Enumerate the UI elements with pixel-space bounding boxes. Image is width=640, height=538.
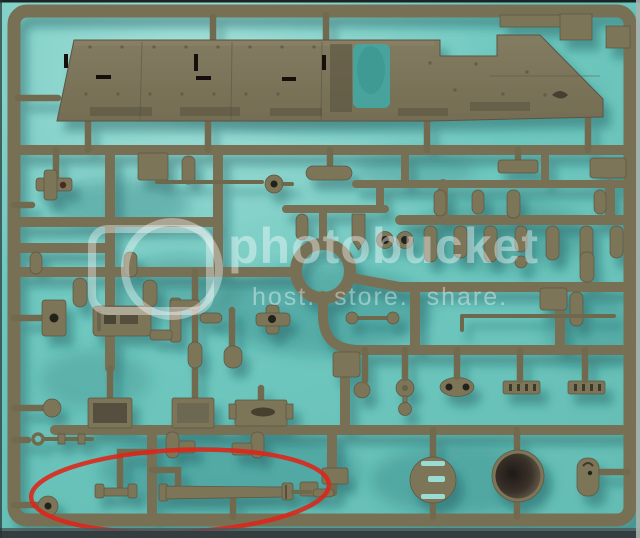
photo-right-edge	[636, 0, 640, 538]
capsule-part	[182, 156, 195, 184]
hull-recess-panel	[330, 44, 352, 112]
photo-top-edge	[0, 0, 640, 3]
watermark-title: photobucket	[228, 218, 539, 274]
watermark-tagline: host. store. share.	[252, 283, 508, 311]
hull-opening-shadow	[357, 46, 385, 94]
hatch-disc-part	[410, 457, 456, 503]
tab-part	[590, 158, 626, 178]
sprue-photo: photobucket host. store. share.	[0, 0, 640, 538]
ball-part	[43, 399, 61, 417]
tab-part	[498, 160, 538, 173]
sprue-photo-canvas: photobucket host. store. share.	[0, 0, 640, 538]
capsule-part	[570, 292, 583, 326]
hull-part	[57, 35, 603, 121]
box-part	[138, 153, 168, 180]
photo-bottom-edge	[0, 531, 640, 538]
capsule-part	[306, 166, 352, 180]
photo-bottom-shadow	[0, 528, 640, 531]
oval-small-part	[577, 458, 599, 496]
block-part	[540, 288, 567, 310]
photo-left-edge	[0, 0, 2, 538]
box-with-hole-part	[42, 300, 66, 336]
tray-parts	[88, 398, 293, 428]
cone-part	[492, 450, 544, 502]
oval-plate-part	[440, 378, 474, 397]
shackle-part	[33, 434, 92, 444]
box-part	[333, 352, 360, 377]
